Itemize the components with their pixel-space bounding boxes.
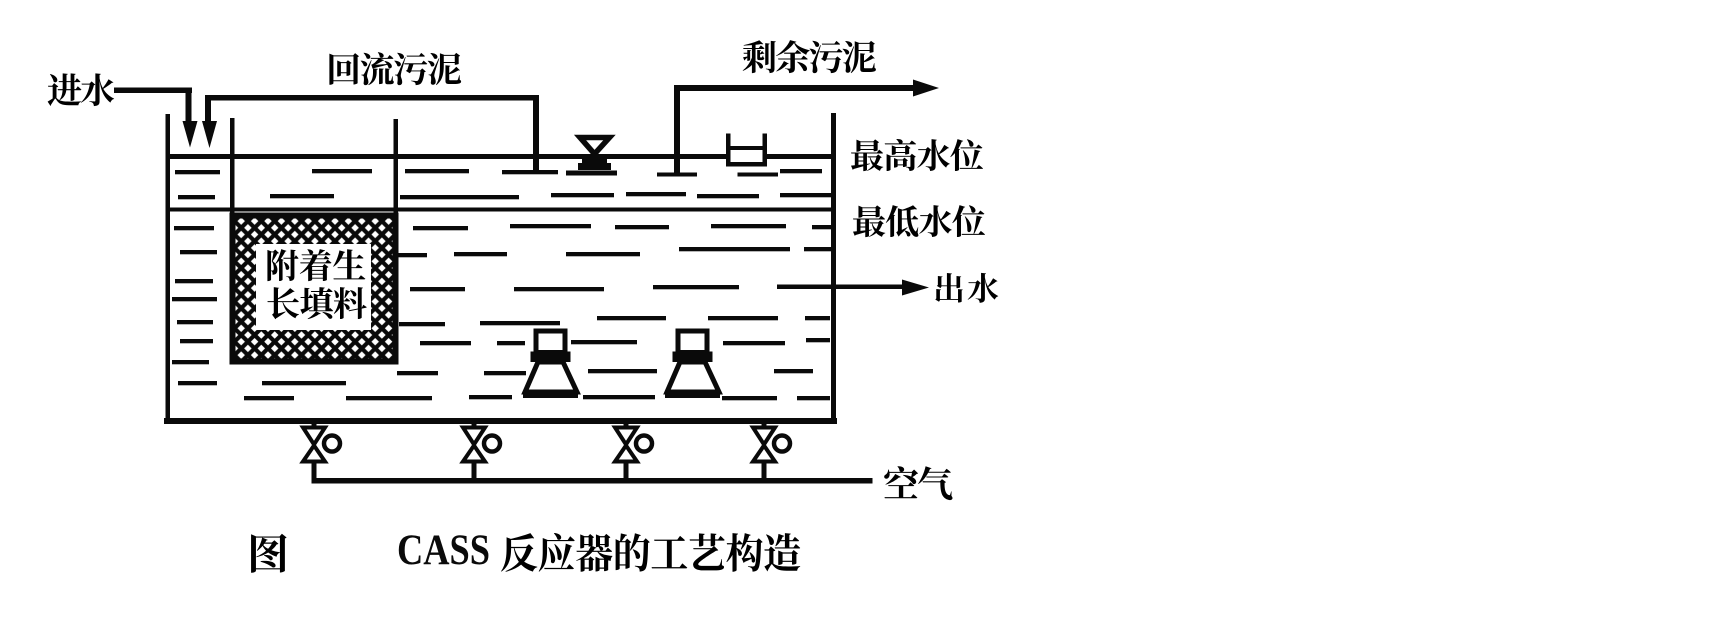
svg-text:CASS: CASS — [397, 527, 490, 574]
